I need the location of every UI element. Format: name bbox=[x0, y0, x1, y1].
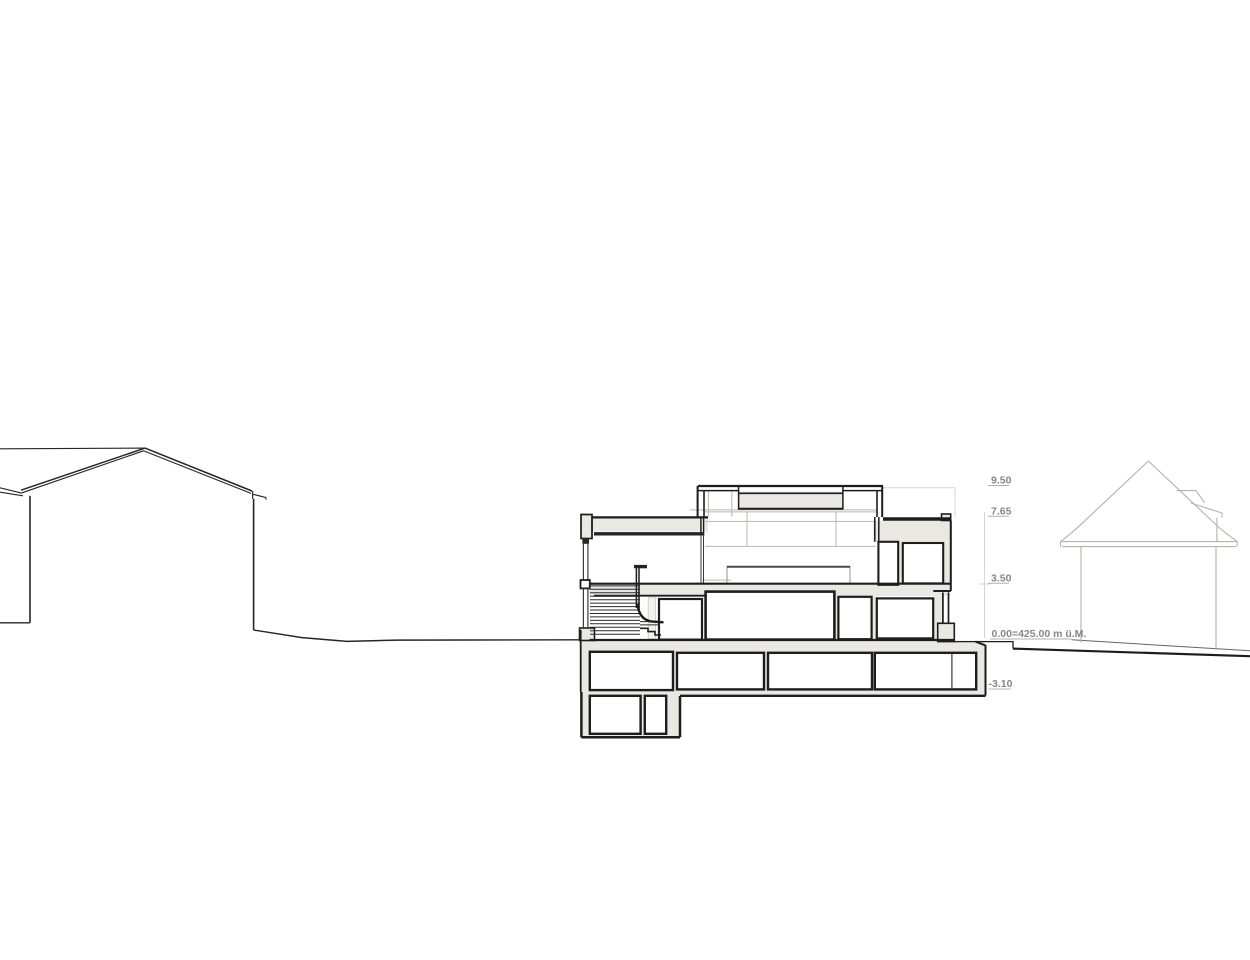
room-gf-hall bbox=[659, 599, 702, 640]
window-mullion-left-wing bbox=[701, 536, 704, 584]
room-gf-main bbox=[706, 592, 835, 640]
right-neighbor-building bbox=[1061, 461, 1238, 650]
left-house-roof-left-inner bbox=[22, 451, 144, 493]
rooms bbox=[590, 542, 976, 734]
left-house-eave-right bbox=[253, 491, 266, 500]
section-drawing-canvas: 9.50 7.65 3.50 0.00=425.00 m ü.M. -3.10 bbox=[0, 0, 1250, 960]
right-house-dormer bbox=[1177, 491, 1222, 542]
left-house-roof-right-outer bbox=[145, 448, 252, 491]
left-house-eave-left bbox=[0, 488, 23, 496]
stair-newel-cap bbox=[634, 565, 647, 568]
base-block-right-fill bbox=[938, 623, 955, 641]
interior-skylight-jambs bbox=[747, 512, 836, 547]
main-building-section bbox=[580, 486, 991, 738]
left-facade-wall bbox=[581, 538, 590, 628]
level-label-ground-floor: 0.00=425.00 m ü.M. bbox=[992, 628, 1087, 640]
left-house-roof-right-inner bbox=[144, 451, 252, 494]
terrain-line-left bbox=[254, 630, 581, 641]
room-bm-3 bbox=[768, 653, 872, 690]
level-label-roof-lower: 7.65 bbox=[991, 505, 1012, 517]
room-bm-4 bbox=[875, 653, 976, 690]
interior-mullions-upper bbox=[708, 492, 731, 517]
room-ext-2 bbox=[645, 696, 666, 734]
room-bm-1 bbox=[590, 652, 673, 690]
elevation-levels: 9.50 7.65 3.50 0.00=425.00 m ü.M. -3.10 bbox=[988, 475, 1086, 691]
room-ext-1 bbox=[590, 696, 641, 734]
interior-line-clerestory bbox=[690, 510, 876, 512]
room-ff-right-2 bbox=[903, 543, 943, 583]
facade-slab-anchor bbox=[581, 580, 590, 588]
roof-recess-fill bbox=[739, 492, 843, 510]
parapet-left-fill bbox=[581, 515, 592, 539]
level-label-upper-floor: 3.50 bbox=[991, 572, 1012, 584]
stair-treads bbox=[590, 586, 640, 634]
right-house-roof-right bbox=[1148, 461, 1237, 541]
section-drawing: 9.50 7.65 3.50 0.00=425.00 m ü.M. -3.10 bbox=[0, 0, 1250, 960]
interior-furniture-outline bbox=[727, 567, 850, 584]
left-house-roof-left-outer bbox=[21, 448, 145, 490]
terrain-right bbox=[954, 640, 1250, 656]
roof-right-wing-fill bbox=[873, 521, 952, 542]
terrain-line-right-upper bbox=[1072, 640, 1250, 651]
roof-left-wing-fill bbox=[592, 518, 708, 532]
left-house-ridge-line bbox=[0, 448, 145, 449]
room-bm-2 bbox=[677, 653, 764, 690]
facade-mullion-block bbox=[582, 538, 589, 543]
room-gf-3 bbox=[877, 598, 933, 638]
terrain-line-right-lower bbox=[1013, 649, 1250, 657]
envelope-upper bbox=[883, 488, 955, 517]
level-label-basement: -3.10 bbox=[989, 678, 1013, 690]
right-house-roof-left bbox=[1061, 461, 1149, 541]
left-neighbor-building bbox=[0, 448, 266, 630]
level-texts: 9.50 7.65 3.50 0.00=425.00 m ü.M. -3.10 bbox=[989, 475, 1087, 691]
gf-right-wall bbox=[943, 593, 949, 624]
room-ff-right-1 bbox=[878, 542, 898, 585]
facade-glazing-lower bbox=[583, 588, 588, 628]
level-label-roof-upper: 9.50 bbox=[991, 475, 1012, 487]
right-house-eave-band bbox=[1061, 542, 1238, 547]
room-gf-2 bbox=[838, 597, 871, 639]
facade-glazing-upper bbox=[583, 544, 588, 580]
